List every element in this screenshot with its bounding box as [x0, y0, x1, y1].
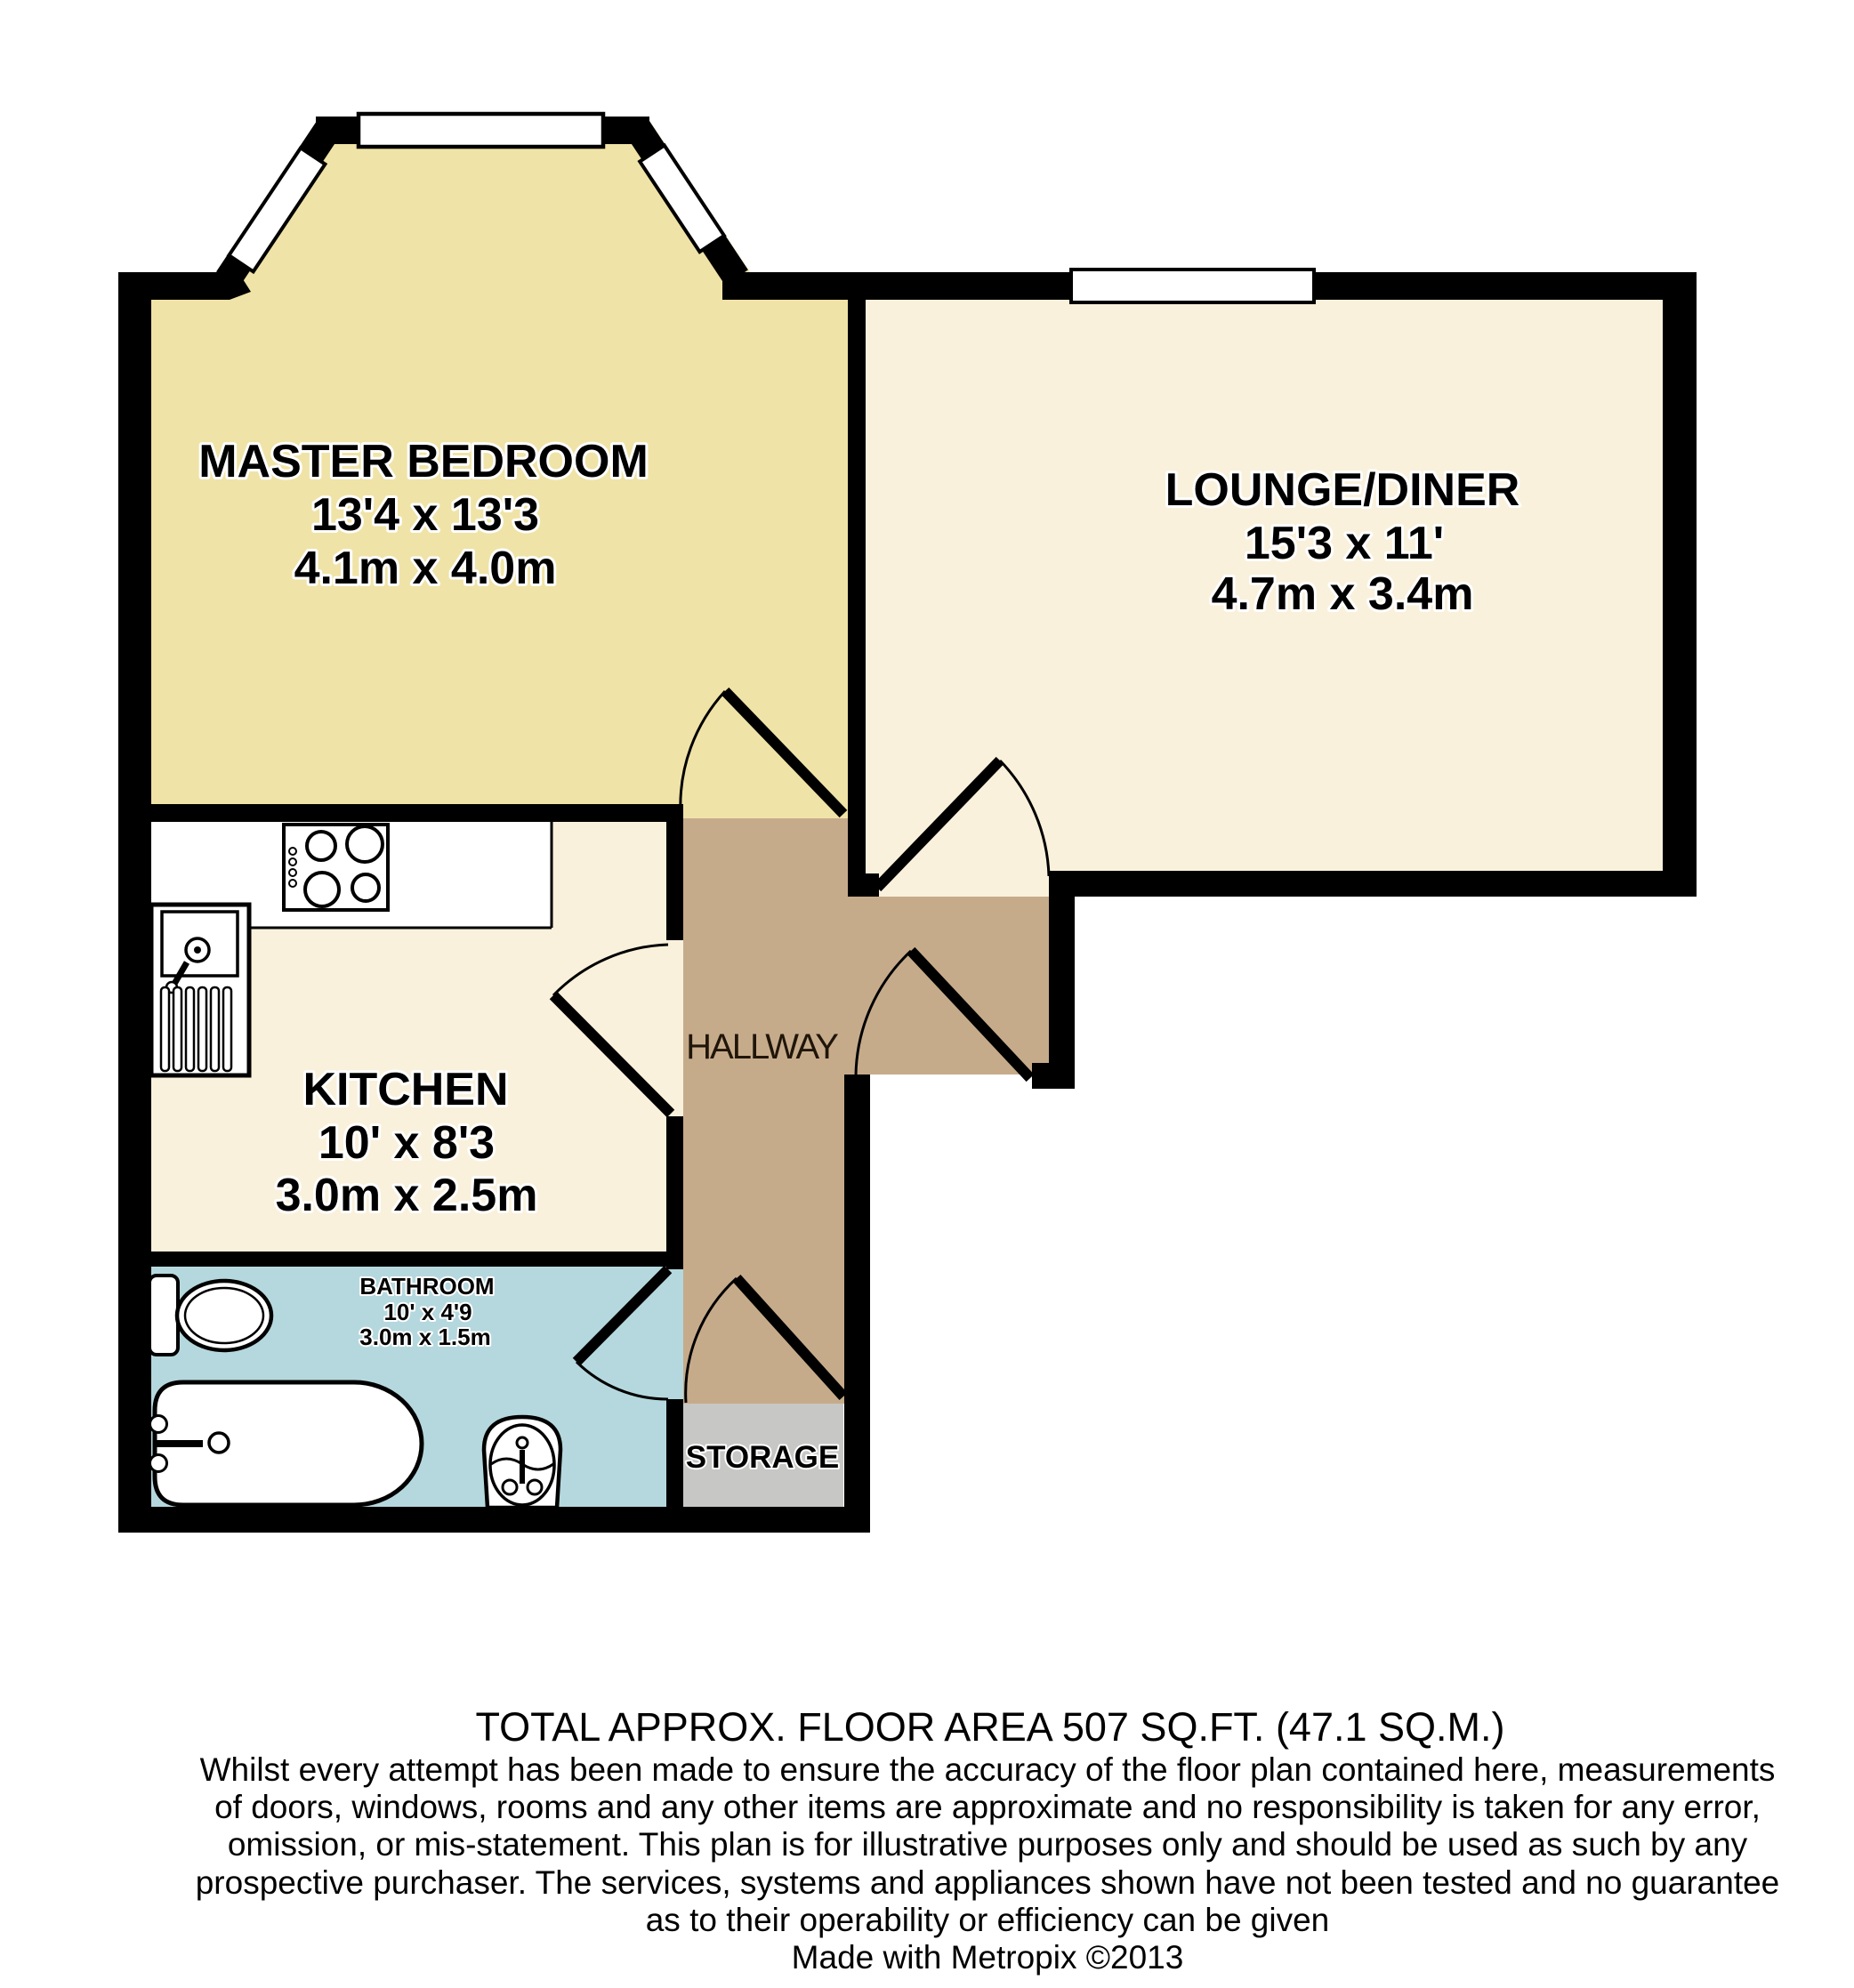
svg-text:4.7m x 3.4m: 4.7m x 3.4m [1212, 568, 1474, 620]
svg-text:prospective purchaser. The ser: prospective purchaser. The services, sys… [196, 1864, 1780, 1901]
svg-text:BATHROOM: BATHROOM [359, 1273, 494, 1300]
svg-text:10' x 4'9: 10' x 4'9 [383, 1299, 472, 1325]
svg-text:Made with Metropix ©2013: Made with Metropix ©2013 [792, 1939, 1184, 1976]
svg-text:15'3 x 11': 15'3 x 11' [1245, 518, 1444, 569]
svg-text:3.0m x 2.5m: 3.0m x 2.5m [276, 1170, 538, 1221]
svg-text:omission, or mis-statement. Th: omission, or mis-statement. This plan is… [228, 1826, 1748, 1863]
svg-text:HALLWAY: HALLWAY [686, 1027, 838, 1066]
svg-text:MASTER BEDROOM: MASTER BEDROOM [198, 436, 649, 487]
svg-text:LOUNGE/DINER: LOUNGE/DINER [1165, 464, 1520, 516]
svg-text:3.0m x 1.5m: 3.0m x 1.5m [359, 1324, 490, 1350]
svg-text:STORAGE: STORAGE [686, 1440, 839, 1475]
svg-text:of doors, windows, rooms and a: of doors, windows, rooms and any other i… [214, 1789, 1761, 1825]
svg-text:13'4 x 13'3: 13'4 x 13'3 [311, 489, 539, 541]
svg-text:4.1m x 4.0m: 4.1m x 4.0m [294, 543, 557, 594]
svg-text:10' x 8'3: 10' x 8'3 [318, 1117, 495, 1169]
svg-text:KITCHEN: KITCHEN [302, 1064, 508, 1115]
svg-text:as to their operability or eff: as to their operability or efficiency ca… [646, 1902, 1330, 1938]
svg-text:Whilst every attempt has been: Whilst every attempt has been made to en… [200, 1751, 1776, 1788]
svg-text:TOTAL APPROX. FLOOR AREA 507 S: TOTAL APPROX. FLOOR AREA 507 SQ.FT. (47.… [475, 1704, 1504, 1750]
